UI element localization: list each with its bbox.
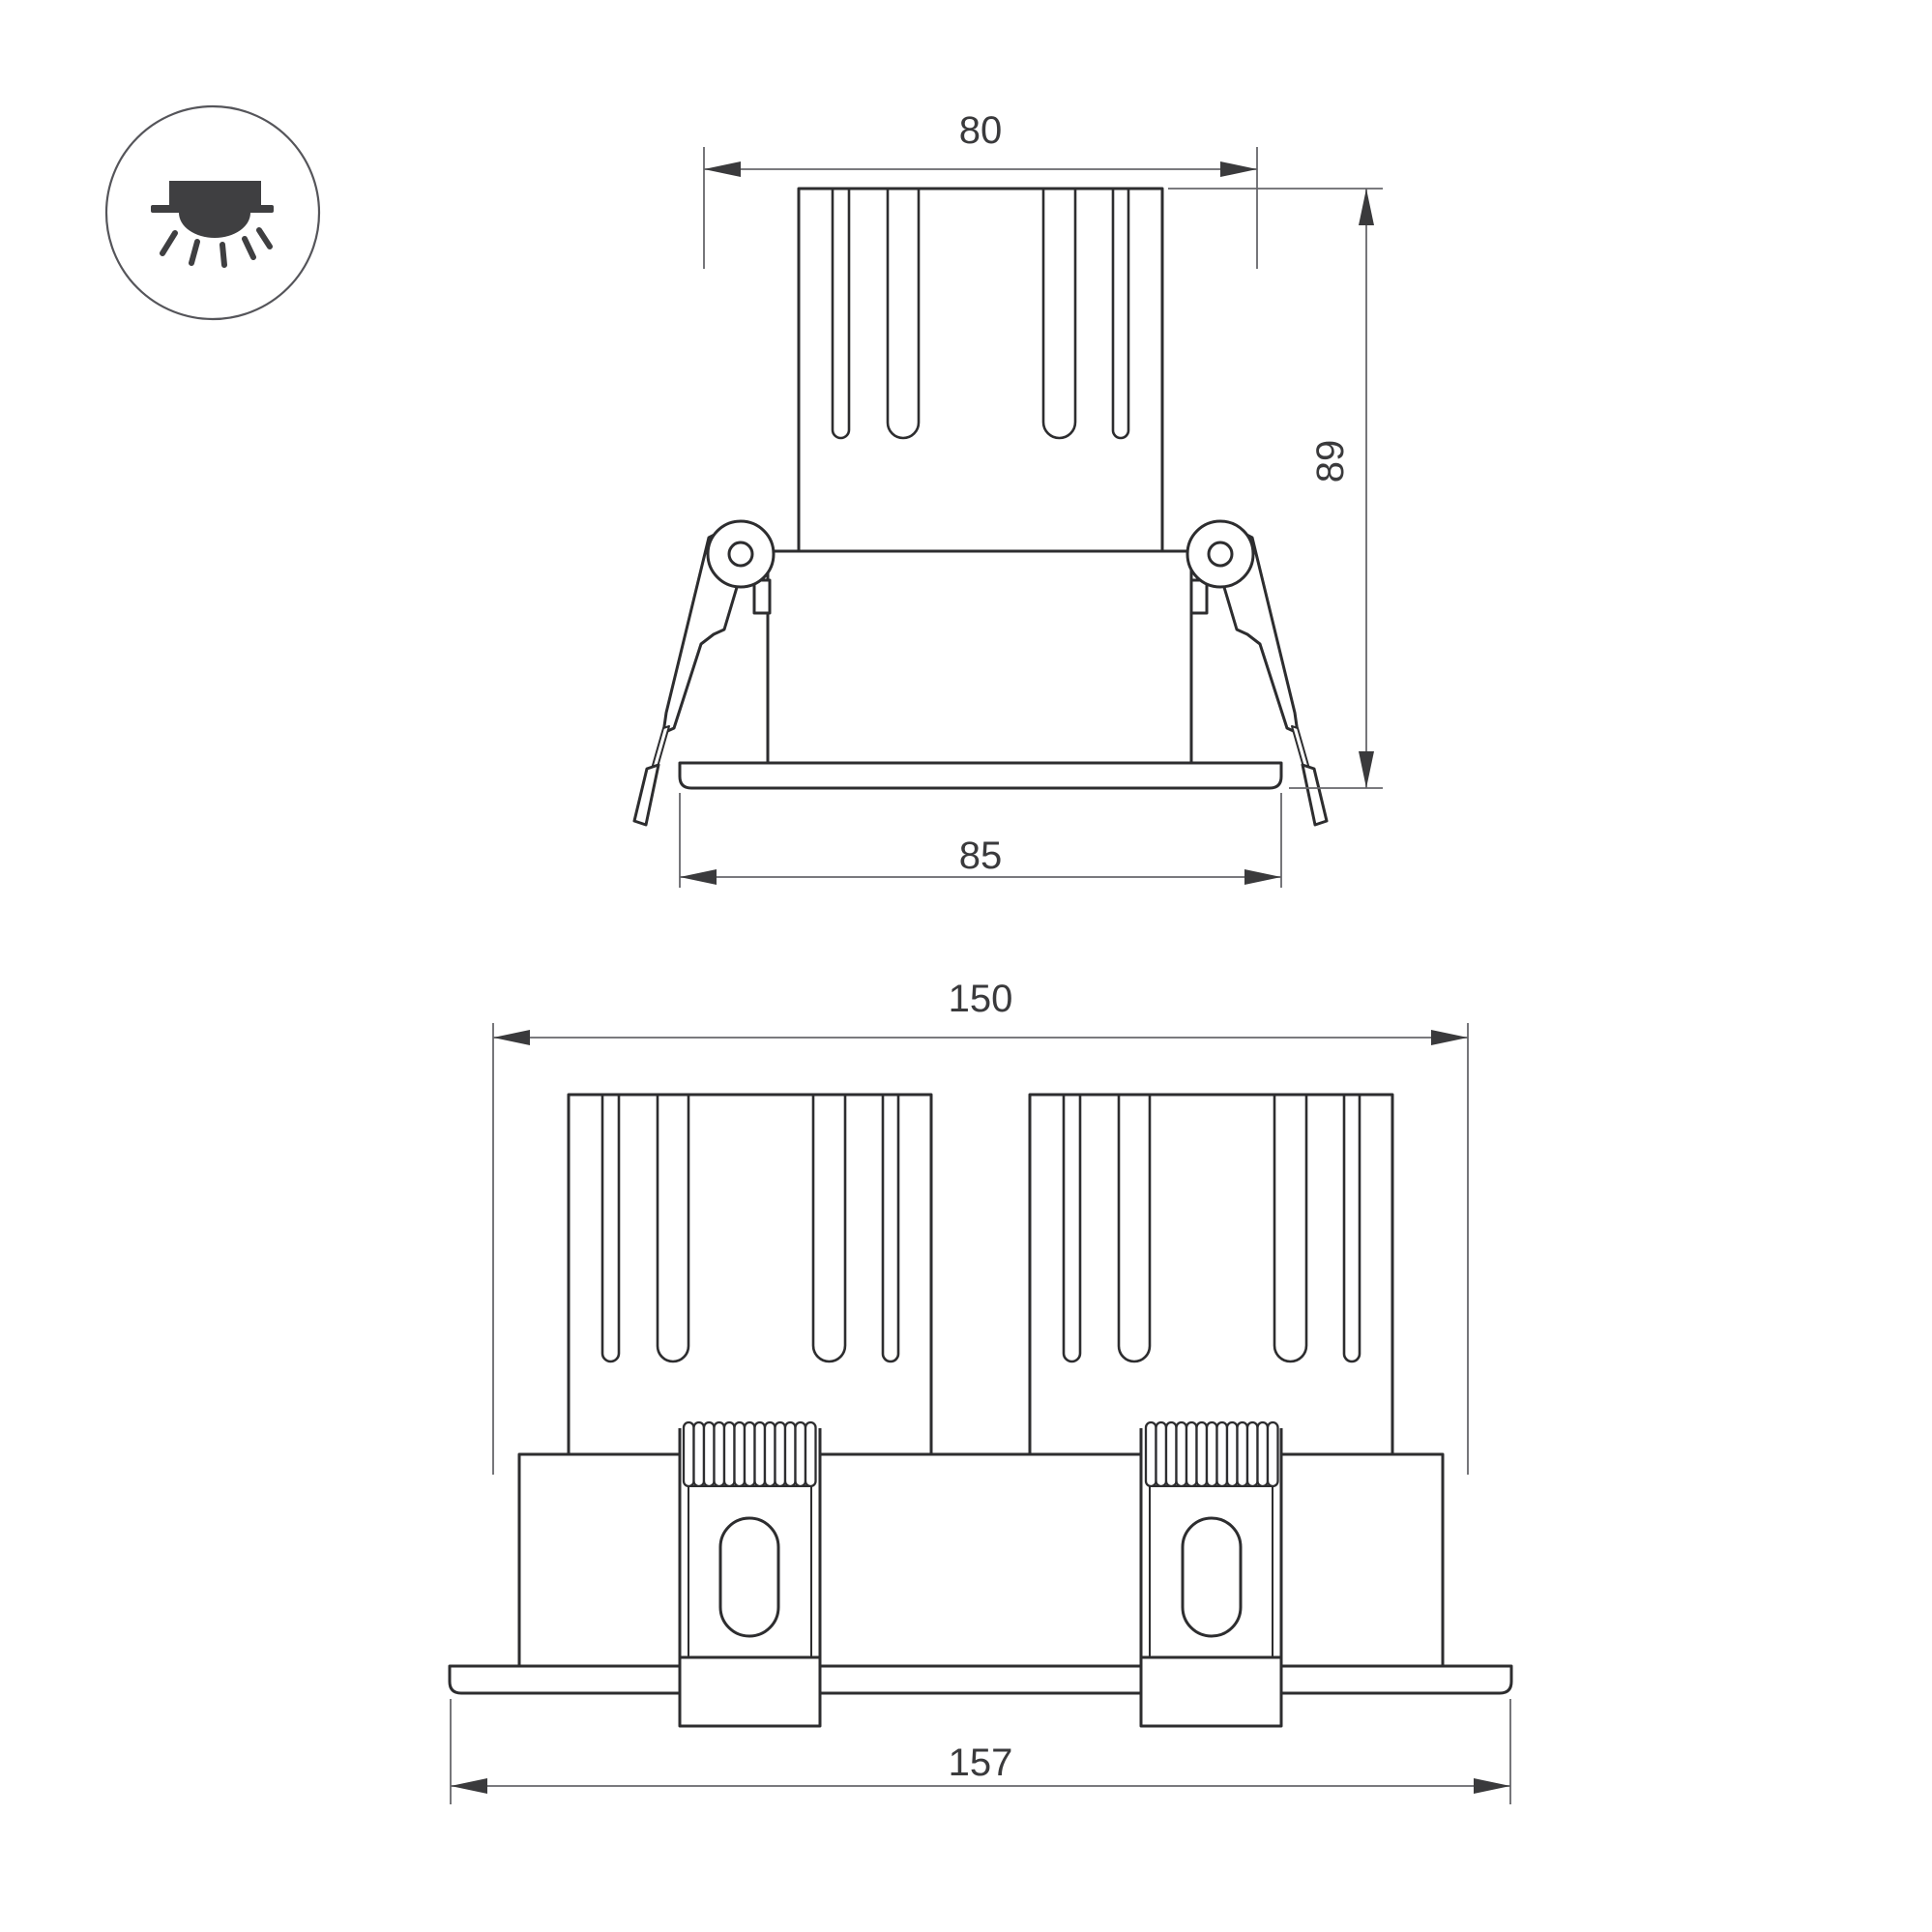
- adjuster-right: [1141, 1420, 1281, 1726]
- dimension-text: 85: [959, 834, 1003, 877]
- recessed-downlight-mounting-icon: [106, 106, 319, 319]
- clip-pivot-hole: [729, 542, 752, 566]
- knurled-spring: [1146, 1422, 1278, 1486]
- heatsink-body-left: [569, 1095, 931, 1454]
- icon-lens-dome: [179, 213, 250, 238]
- heatsink-body-right: [1030, 1095, 1392, 1454]
- dimension-flange-width-85: 85: [680, 793, 1281, 888]
- trim-body: [768, 551, 1191, 763]
- adjuster-left: [680, 1420, 820, 1726]
- dimension-text: 80: [959, 109, 1003, 152]
- dimensional-drawing: 80 89 85 150 157: [0, 0, 1932, 1932]
- twin-head-front-view: [450, 1095, 1511, 1726]
- arrowhead-right: [1474, 1778, 1510, 1794]
- trim-frame: [519, 1454, 1443, 1666]
- adjuster-foot: [680, 1657, 820, 1726]
- adjuster-slot-oval: [1183, 1518, 1241, 1636]
- dimension-text: 150: [949, 978, 1013, 1020]
- arrowhead-right: [1244, 869, 1281, 885]
- arrowhead-top: [1359, 189, 1374, 225]
- clip-pivot-hole: [1209, 542, 1232, 566]
- arrowhead-left: [451, 1778, 487, 1794]
- heatsink-body: [799, 189, 1162, 551]
- arrowhead-left: [680, 869, 717, 885]
- clip-bracket: [754, 580, 770, 613]
- clip-spring-blade: [1292, 726, 1309, 769]
- dimension-text: 157: [949, 1742, 1013, 1784]
- adjuster-foot: [1141, 1657, 1281, 1726]
- single-head-front-view: [634, 189, 1327, 825]
- arrowhead-left: [493, 1030, 530, 1045]
- adjuster-slot-oval: [720, 1518, 778, 1636]
- clip-spring-foot: [1303, 765, 1327, 825]
- drawing-page: 80 89 85 150 157: [0, 0, 1932, 1932]
- clip-spring-blade: [652, 726, 669, 769]
- dimension-height-89: 89: [1168, 189, 1383, 788]
- icon-ceiling-flange: [151, 205, 274, 213]
- dimension-text: 89: [1309, 440, 1352, 483]
- mounting-flange: [680, 763, 1281, 788]
- clip-bracket: [1191, 580, 1207, 613]
- dimension-flange-length-157: 157: [451, 1699, 1510, 1804]
- base-plate: [450, 1666, 1511, 1693]
- clip-spring-foot: [634, 765, 659, 825]
- icon-lamp-body: [169, 181, 261, 208]
- knurled-spring: [684, 1422, 816, 1486]
- arrowhead-right: [1431, 1030, 1468, 1045]
- arrowhead-right: [1220, 161, 1257, 177]
- arrowhead-left: [704, 161, 741, 177]
- arrowhead-bottom: [1359, 751, 1374, 788]
